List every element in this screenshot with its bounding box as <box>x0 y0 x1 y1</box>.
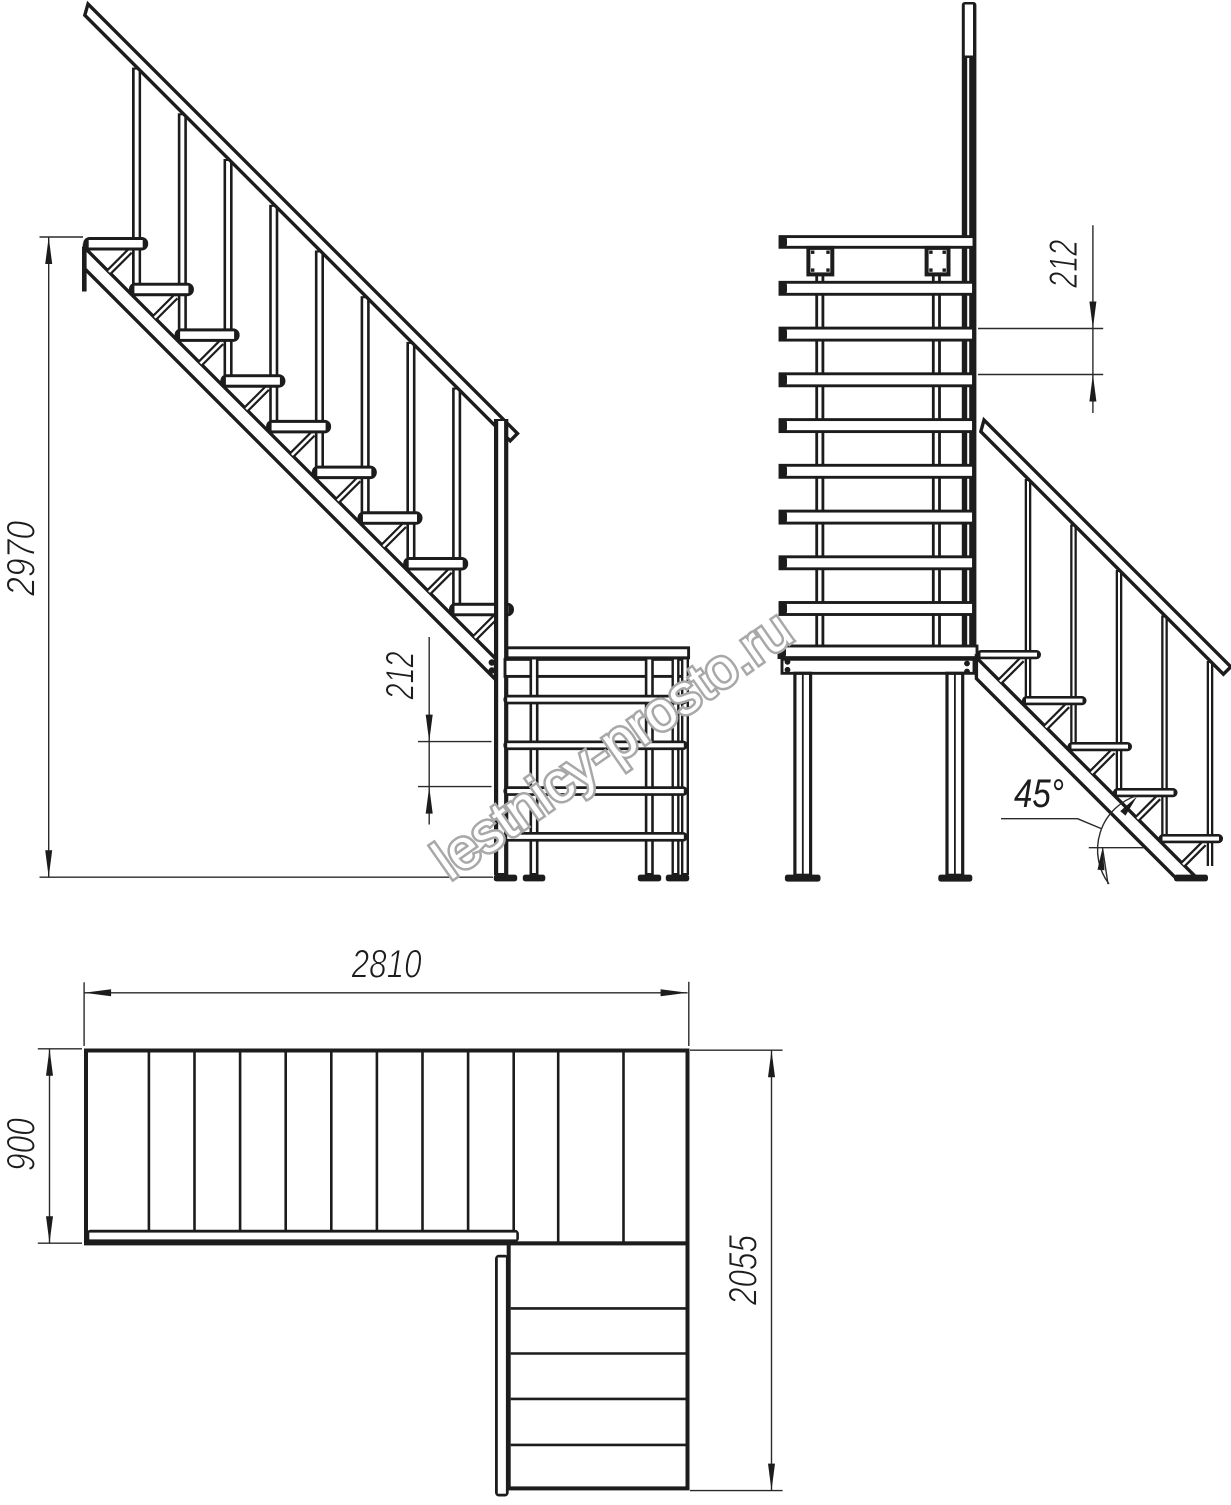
svg-text:212: 212 <box>1042 240 1086 289</box>
svg-text:212: 212 <box>379 652 423 701</box>
svg-text:2055: 2055 <box>722 1234 766 1305</box>
svg-text:2810: 2810 <box>351 943 422 987</box>
svg-text:900: 900 <box>0 1118 44 1171</box>
svg-text:2970: 2970 <box>0 521 44 597</box>
svg-text:45°: 45° <box>1014 772 1064 816</box>
